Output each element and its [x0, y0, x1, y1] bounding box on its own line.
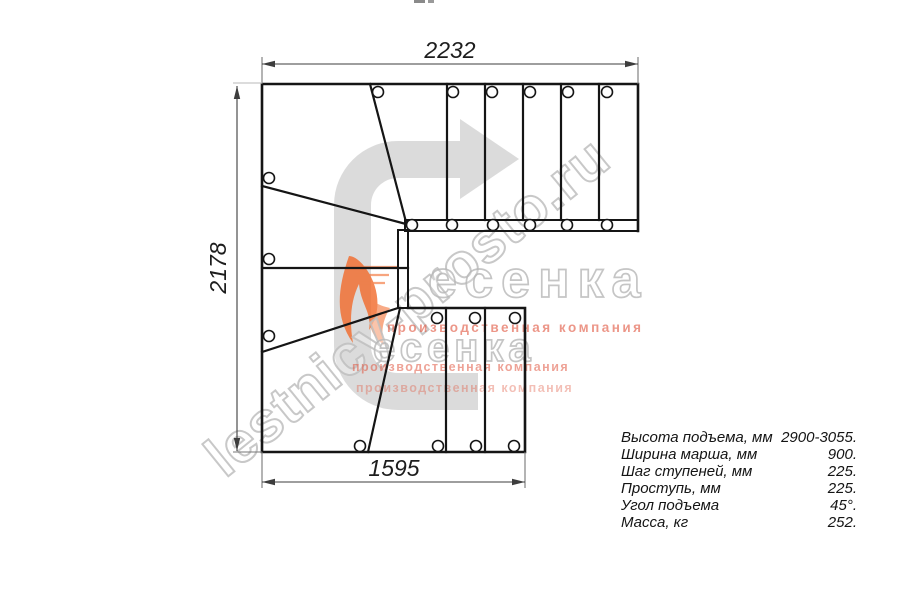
- spec-label: Высота подъема, мм: [621, 429, 773, 446]
- winder-step-lines: [262, 84, 408, 452]
- spec-label: Ширина марша, мм: [621, 446, 757, 463]
- stair-plan-canvas: lestnicy-prosto.ru есенка производственн…: [0, 0, 900, 600]
- spec-row: Высота подъема, мм 2900-3055.: [621, 429, 857, 446]
- bottom-width-dimension-label: 1595: [368, 455, 419, 481]
- spec-label: Угол подъема: [621, 497, 719, 514]
- spec-label: Проступь, мм: [621, 480, 721, 497]
- top-width-dimension-label: 2232: [423, 37, 475, 63]
- extension-lines: [233, 57, 638, 488]
- spec-row: Шаг ступеней, мм 225.: [621, 463, 857, 480]
- spec-label: Шаг ступеней, мм: [621, 463, 752, 480]
- cropped-text-fragment: [414, 0, 434, 3]
- spec-row: Угол подъема 45°.: [621, 497, 857, 514]
- spec-row: Ширина марша, мм 900.: [621, 446, 857, 463]
- spec-value: 45°.: [830, 497, 857, 514]
- straight-step-lines: [446, 84, 599, 452]
- spec-row: Проступь, мм 225.: [621, 480, 857, 497]
- stair-outline: [262, 84, 638, 452]
- left-height-dimension-label: 2178: [205, 242, 231, 294]
- dimension-lines: [237, 64, 638, 482]
- spec-value: 225.: [828, 480, 857, 497]
- spec-value: 252.: [828, 514, 857, 531]
- spec-row: Масса, кг 252.: [621, 514, 857, 531]
- spec-value: 225.: [828, 463, 857, 480]
- spec-label: Масса, кг: [621, 514, 688, 531]
- spec-value: 2900-3055.: [781, 429, 857, 446]
- dimension-arrowheads: [234, 61, 638, 485]
- spec-value: 900.: [828, 446, 857, 463]
- spec-table: Высота подъема, мм 2900-3055. Ширина мар…: [621, 429, 857, 531]
